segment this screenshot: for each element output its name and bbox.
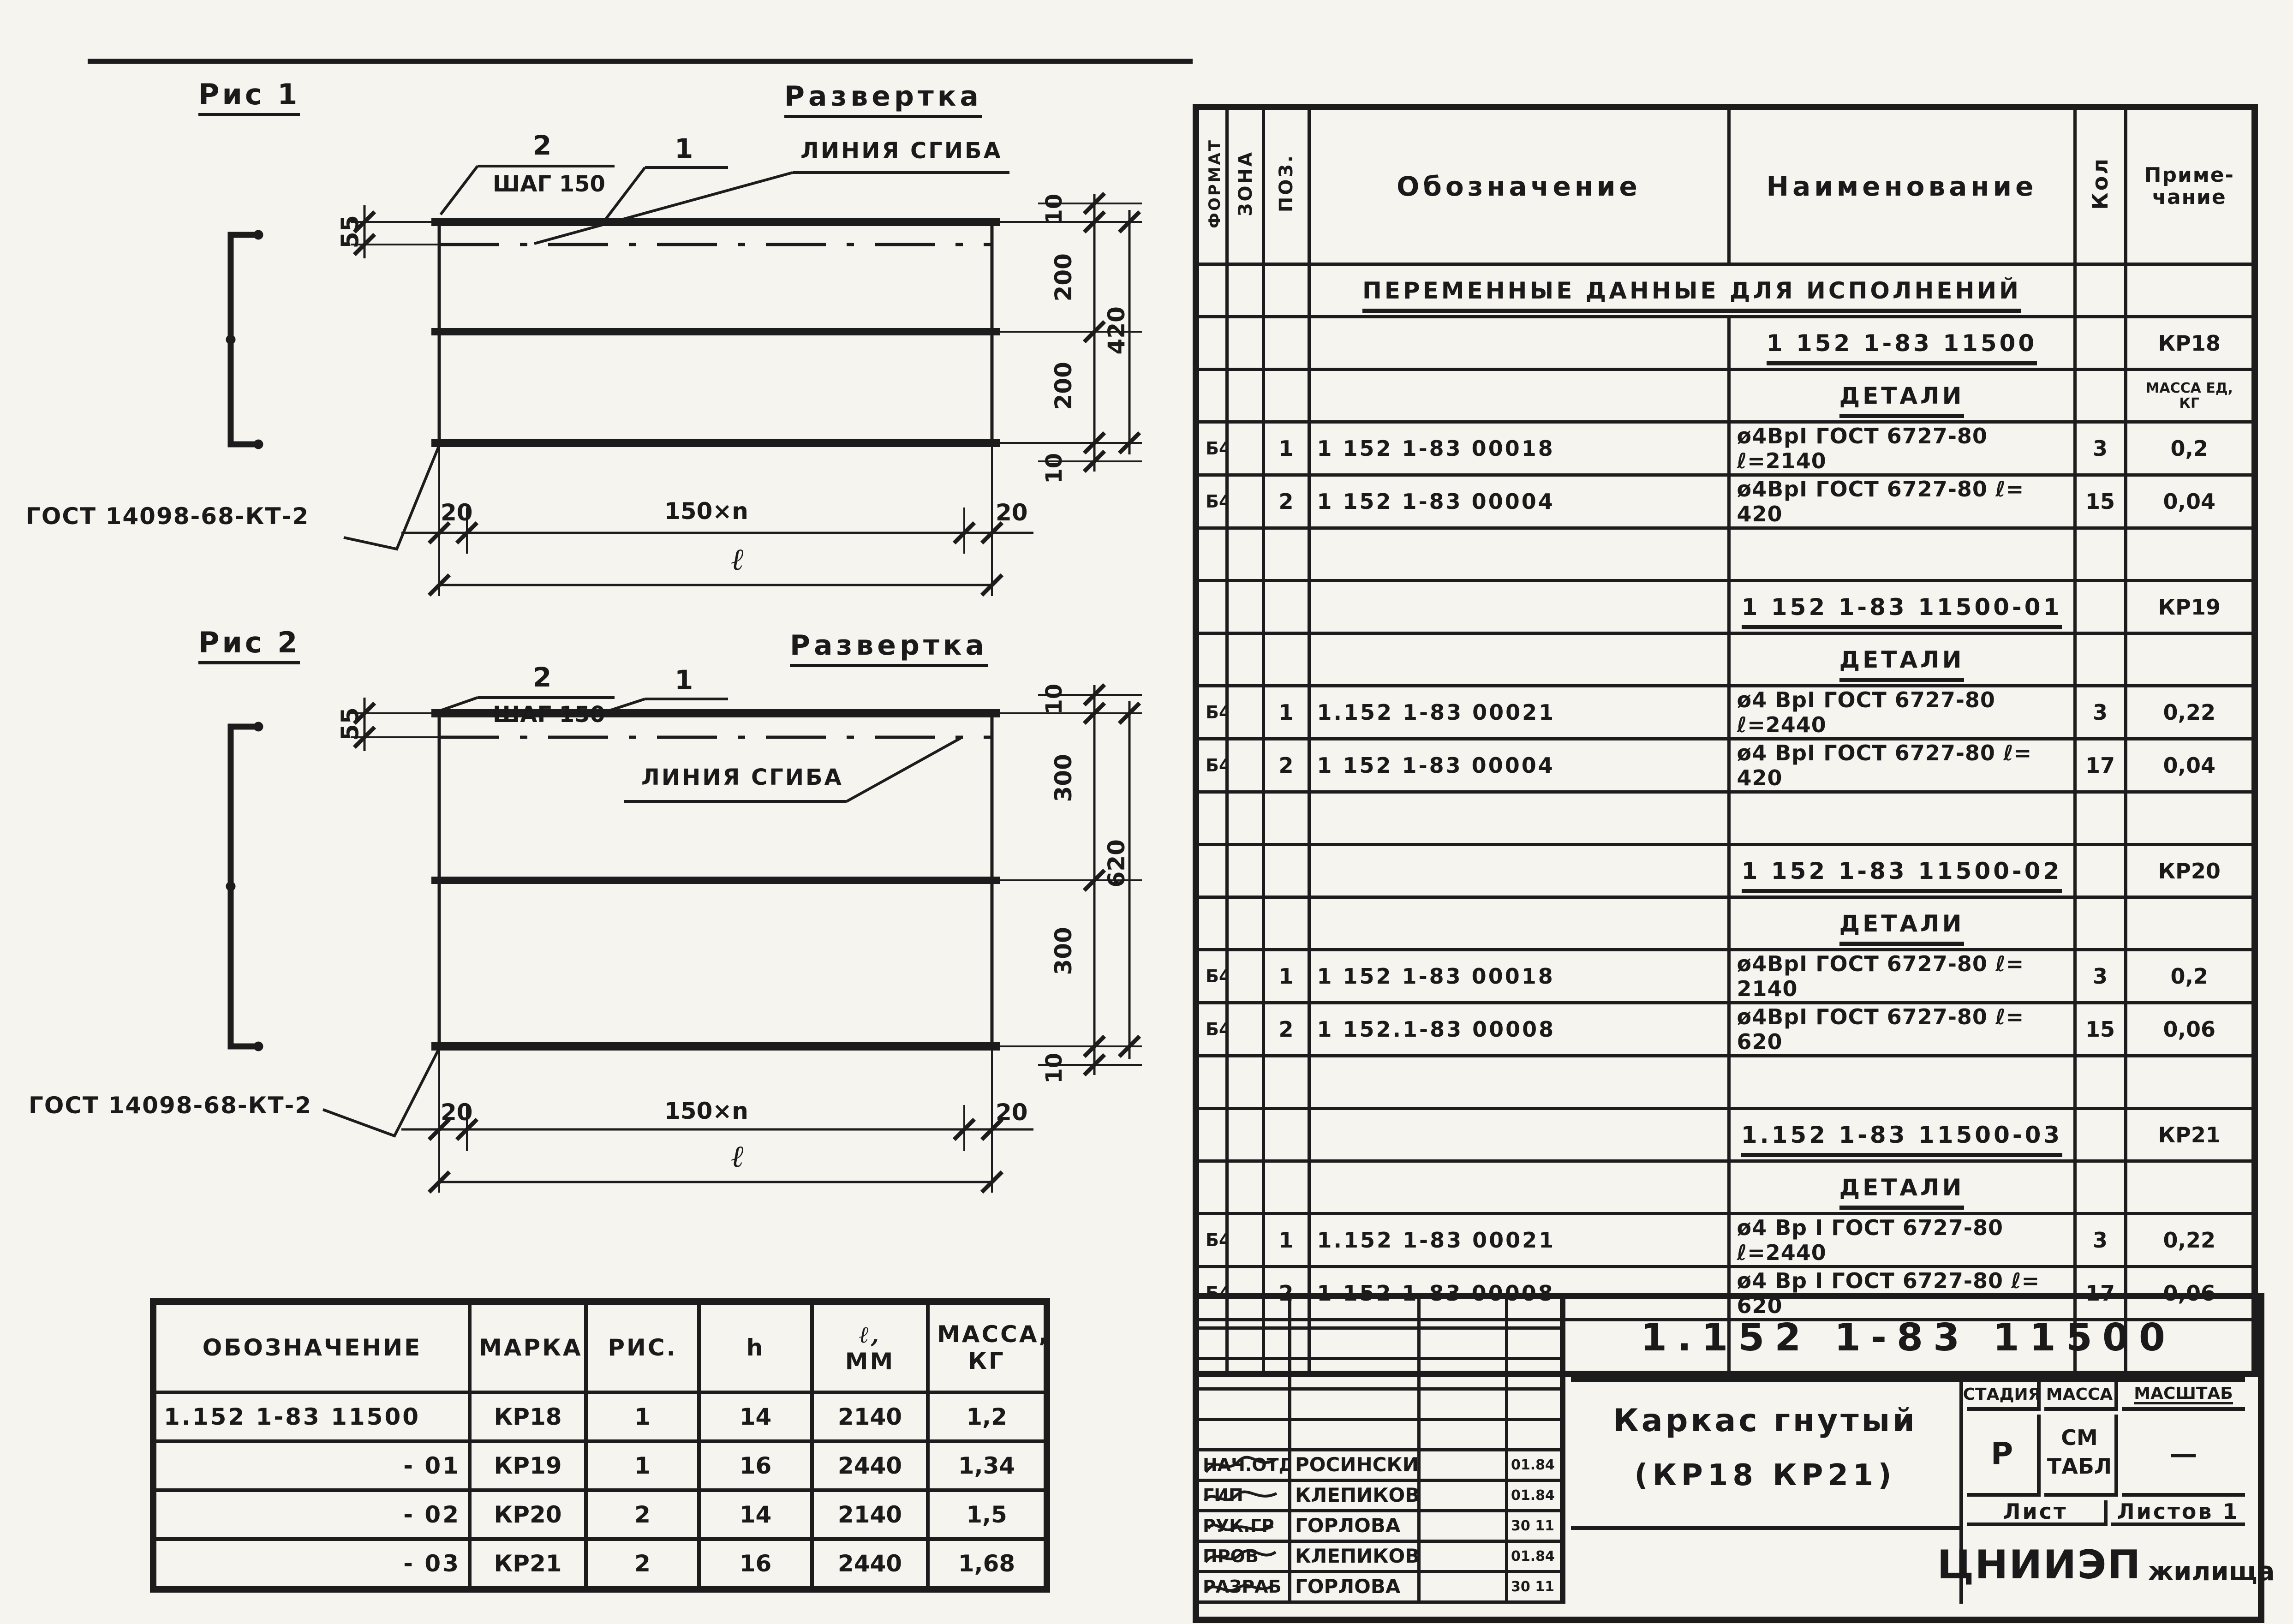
figure1-dim-length: ℓ <box>731 543 744 575</box>
spec-item-row: Б4 1 1.152 1-83 00021 ø4 Вр I ГОСТ 6727-… <box>1196 1214 2255 1267</box>
product-name-cell: Каркас гнутый (КР18 КР21) <box>1571 1382 1963 1526</box>
signature-date: 01.84 <box>1508 1482 1565 1512</box>
figure2-dim-620: 620 <box>1105 833 1129 893</box>
table-row: - 02 КР20 2 14 2140 1,5 <box>153 1490 1047 1539</box>
spec-col-designation: Обозначение <box>1309 107 1729 264</box>
figure2-section-profile <box>226 722 263 1051</box>
spec-group-row: ДЕТАЛИ <box>1196 897 2255 950</box>
spec-col-zone: ЗОНА <box>1227 107 1263 264</box>
spec-section-row: ПЕРЕМЕННЫЕ ДАННЫЕ ДЛЯ ИСПОЛНЕНИЙ <box>1196 264 2255 317</box>
title-block-empty-row <box>1199 1360 1565 1391</box>
figure2-dim-10-bottom: 10 <box>1043 1043 1066 1093</box>
figure1-dimensions <box>351 193 1142 596</box>
drawing-sheet: Рис 1 Развертка 2 ШАГ 150 1 ЛИНИЯ СГИБА … <box>0 0 2293 1624</box>
spec-group-row: ДЕТАЛИ <box>1196 633 2255 686</box>
spec-item-row: Б4 1 1 152 1-83 00018 ø4ВрI ГОСТ 6727-80… <box>1196 950 2255 1003</box>
params-header-row: ОБОЗНАЧЕНИЕ МАРКА РИС. h ℓ,ММ МАССА,КГ <box>153 1302 1047 1392</box>
spec-group-row: ДЕТАЛИ МАССА ЕД, КГ <box>1196 370 2255 422</box>
figure1-dim-10-top: 10 <box>1043 184 1066 234</box>
figure1-view-label: Развертка <box>784 82 982 118</box>
spec-empty-row <box>1196 792 2255 845</box>
spec-col-note: Приме-чание <box>2126 107 2255 264</box>
mass-label-cell: МАССА <box>2044 1382 2118 1411</box>
scale-label-cell: МАСШТАБ <box>2122 1382 2245 1411</box>
spec-col-pos: ПОЗ. <box>1263 107 1309 264</box>
figure2-callout-1: 1 <box>675 666 693 694</box>
titleblock-designation-cell: 1.152 1-83 11500 <box>1571 1299 2245 1382</box>
document-designation: 1.152 1-83 11500 <box>1641 1318 2175 1358</box>
figure1-section-profile <box>226 230 263 449</box>
signature-mark <box>1421 1512 1508 1543</box>
table-row: - 03 КР21 2 16 2440 1,68 <box>153 1539 1047 1589</box>
figure1-title: Рис 1 <box>198 79 300 116</box>
figure1-dim-420: 420 <box>1105 300 1129 360</box>
figure1-bars <box>431 218 1000 447</box>
signature-row: РАЗРАБ ГОРЛОВА 30 11 83 <box>1199 1573 1565 1604</box>
title-block-empty-row <box>1199 1391 1565 1421</box>
figure1-callout-1: 1 <box>675 135 693 163</box>
table-row: - 01 КР19 1 16 2440 1,34 <box>153 1441 1047 1490</box>
stage-label-cell: СТАДИЯ <box>1967 1382 2041 1411</box>
signature-mark <box>1421 1451 1508 1482</box>
figure1-dim-200-top: 200 <box>1051 247 1076 307</box>
spec-group-row: ДЕТАЛИ <box>1196 1161 2255 1214</box>
figure1-dim-55: 55 <box>338 204 364 259</box>
signature-mark <box>1421 1482 1508 1512</box>
spec-group-row: 1 152 1-83 11500-01 КР19 <box>1196 581 2255 633</box>
spec-header-row: ФОРМАТ ЗОНА ПОЗ. Обозначение Наименовани… <box>1196 107 2255 264</box>
signature-mark <box>1421 1573 1508 1604</box>
figure1-dim-150n: 150×n <box>664 499 748 524</box>
spec-col-qty: Кол <box>2075 107 2126 264</box>
signature-name: КЛЕПИКОВА <box>1291 1482 1421 1512</box>
spec-empty-row <box>1196 528 2255 581</box>
figure2-callout-2: 2 <box>533 663 551 692</box>
signature-name: КЛЕПИКОВА <box>1291 1543 1421 1573</box>
title-block: НАЧ.ОТД РОСИНСКИЙ 01.84 ГИП КЛЕПИКОВА 01… <box>1193 1293 2264 1623</box>
signature-row: РУК.ГР ГОРЛОВА 30 11 83 <box>1199 1512 1565 1543</box>
figure2-dim-300-top: 300 <box>1051 748 1076 808</box>
sheet-cell: Лист <box>1967 1500 2108 1526</box>
signature-row: ГИП КЛЕПИКОВА 01.84 <box>1199 1482 1565 1512</box>
figure2-step-label: ШАГ 150 <box>493 703 605 726</box>
figure1-dim-20-left: 20 <box>441 501 473 525</box>
figure2-view-label: Развертка <box>790 631 988 667</box>
spec-table: ФОРМАТ ЗОНА ПОЗ. Обозначение Наименовани… <box>1193 104 2258 1377</box>
organization-name-main: ЦНИИЭП <box>1937 1544 2142 1586</box>
spec-item-row: Б4 2 1 152.1-83 00008 ø4ВрI ГОСТ 6727-80… <box>1196 1003 2255 1056</box>
params-col-length: ℓ,ММ <box>812 1302 928 1392</box>
figure2-dim-length: ℓ <box>731 1140 744 1172</box>
spec-item-row: Б4 1 1.152 1-83 00021 ø4 ВрI ГОСТ 6727-8… <box>1196 686 2255 739</box>
figure2-dim-10-top: 10 <box>1043 674 1066 724</box>
params-col-h: h <box>699 1302 812 1392</box>
params-col-designation: ОБОЗНАЧЕНИЕ <box>153 1302 470 1392</box>
product-name-line2: (КР18 КР21) <box>1571 1460 1959 1491</box>
organization-cell: ЦНИИЭП жилища <box>1967 1526 2245 1604</box>
table-row: 1.152 1-83 11500 КР18 1 14 2140 1,2 <box>153 1392 1047 1441</box>
signature-name: ГОРЛОВА <box>1291 1512 1421 1543</box>
figure2-bars <box>431 709 1000 1050</box>
titleblock-empty-cell <box>1571 1526 1963 1604</box>
sheets-cell: Листов 1 <box>2111 1500 2245 1526</box>
signature-date: 30 11 83 <box>1508 1512 1565 1543</box>
spec-col-name: Наименование <box>1729 107 2075 264</box>
figure2-dim-300-bottom: 300 <box>1051 921 1076 981</box>
spec-item-row: Б4 2 1 152 1-83 00004 ø4ВрI ГОСТ 6727-80… <box>1196 475 2255 528</box>
figure1-step-label: ШАГ 150 <box>493 173 605 196</box>
signature-mark <box>1421 1543 1508 1573</box>
spec-group-row: 1 152 1-83 11500 КР18 <box>1196 317 2255 370</box>
figure1-callout-2: 2 <box>533 131 551 160</box>
title-block-empty-row <box>1199 1330 1565 1360</box>
spec-group-row: 1.152 1-83 11500-03 КР21 <box>1196 1109 2255 1161</box>
figure2-fold-line-label: ЛИНИЯ СГИБА <box>641 766 843 789</box>
figure2-dim-20-right: 20 <box>996 1100 1028 1125</box>
figure1-dim-20-right: 20 <box>996 501 1028 525</box>
signature-date: 30 11 83 <box>1508 1573 1565 1604</box>
signature-date: 01.84 <box>1508 1543 1565 1573</box>
stage-value-cell: Р <box>1967 1415 2041 1497</box>
figure1-dim-10-bottom: 10 <box>1043 443 1066 494</box>
scale-value-cell: — <box>2122 1415 2245 1497</box>
signature-row: НАЧ.ОТД РОСИНСКИЙ 01.84 <box>1199 1451 1565 1482</box>
spec-group-row: 1 152 1-83 11500-02 КР20 <box>1196 845 2255 897</box>
spec-col-format: ФОРМАТ <box>1196 107 1227 264</box>
params-table: ОБОЗНАЧЕНИЕ МАРКА РИС. h ℓ,ММ МАССА,КГ 1… <box>150 1298 1050 1593</box>
product-name-line1: Каркас гнутый <box>1571 1404 1959 1437</box>
figure2-weld-gost-label: ГОСТ 14098-68-КТ-2 <box>29 1093 312 1118</box>
title-block-empty-row <box>1199 1299 1565 1330</box>
figure2-title: Рис 2 <box>198 627 300 664</box>
params-col-mass: МАССА,КГ <box>928 1302 1047 1392</box>
figure1-weld-gost-label: ГОСТ 14098-68-КТ-2 <box>26 504 309 529</box>
figure2-dim-20-left: 20 <box>441 1100 473 1125</box>
spec-item-row: Б4 1 1 152 1-83 00018 ø4ВрI ГОСТ 6727-80… <box>1196 422 2255 475</box>
figure1-dim-200-bottom: 200 <box>1051 356 1076 416</box>
params-col-fig: РИС. <box>586 1302 699 1392</box>
figure2-leaders <box>323 698 961 1136</box>
signature-name: ГОРЛОВА <box>1291 1573 1421 1604</box>
spec-item-row: Б4 2 1 152 1-83 00004 ø4 ВрI ГОСТ 6727-8… <box>1196 739 2255 792</box>
title-block-empty-row <box>1199 1421 1565 1451</box>
signature-row: ПРОВ КЛЕПИКОВА 01.84 <box>1199 1543 1565 1573</box>
params-col-mark: МАРКА <box>470 1302 586 1392</box>
signature-name: РОСИНСКИЙ <box>1291 1451 1421 1482</box>
spec-empty-row <box>1196 1056 2255 1109</box>
figure1-fold-line-label: ЛИНИЯ СГИБА <box>800 139 1003 162</box>
mass-value-cell: СМ ТАБЛ <box>2044 1415 2118 1497</box>
signature-date: 01.84 <box>1508 1451 1565 1482</box>
figure2-dim-150n: 150×n <box>664 1099 748 1123</box>
figure2-dim-55: 55 <box>338 696 364 752</box>
organization-name-sub: жилища <box>2148 1558 2275 1586</box>
